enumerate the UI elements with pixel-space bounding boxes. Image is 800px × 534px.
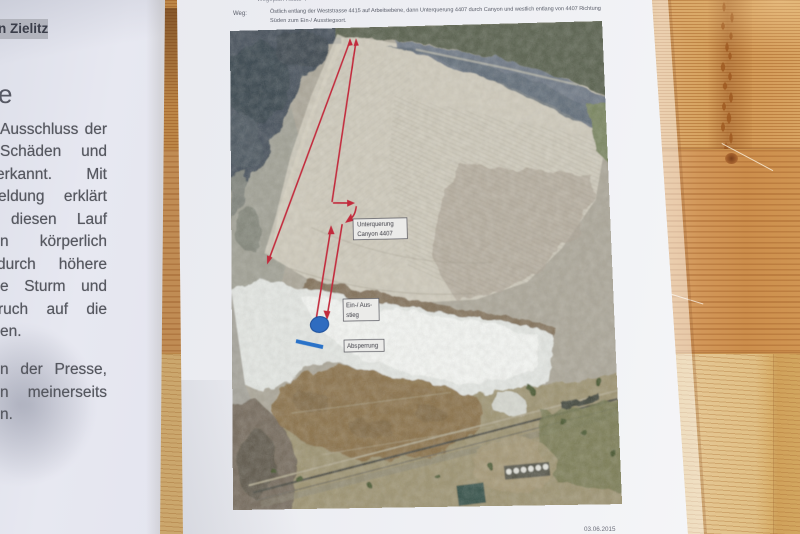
svg-text:Absperrung: Absperrung bbox=[347, 343, 378, 350]
svg-text:Canyon 4407: Canyon 4407 bbox=[357, 231, 393, 238]
svg-text:Ein-/ Aus-: Ein-/ Aus- bbox=[346, 302, 372, 309]
svg-text:stieg: stieg bbox=[346, 313, 359, 320]
svg-text:Unterquerung: Unterquerung bbox=[357, 221, 394, 228]
